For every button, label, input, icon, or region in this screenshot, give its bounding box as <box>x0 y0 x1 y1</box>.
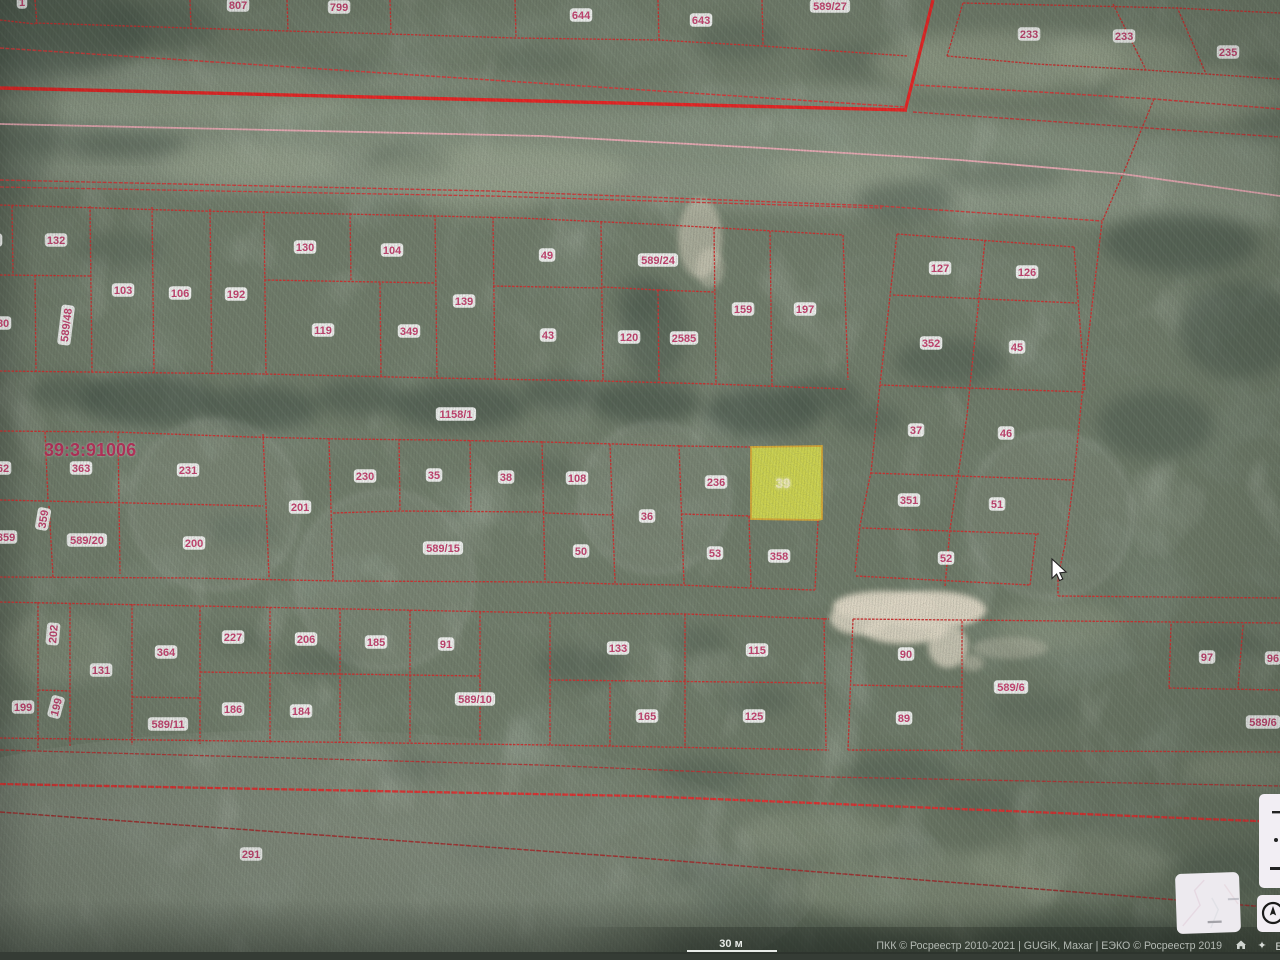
svg-text:30 м: 30 м <box>719 938 742 950</box>
svg-text:ПКК © Росреестр 2010-2021 | GU: ПКК © Росреестр 2010-2021 | GUGiK, Maxar… <box>876 940 1222 952</box>
svg-text:Б: Б <box>1275 941 1280 953</box>
svg-text:✦: ✦ <box>1257 940 1266 952</box>
